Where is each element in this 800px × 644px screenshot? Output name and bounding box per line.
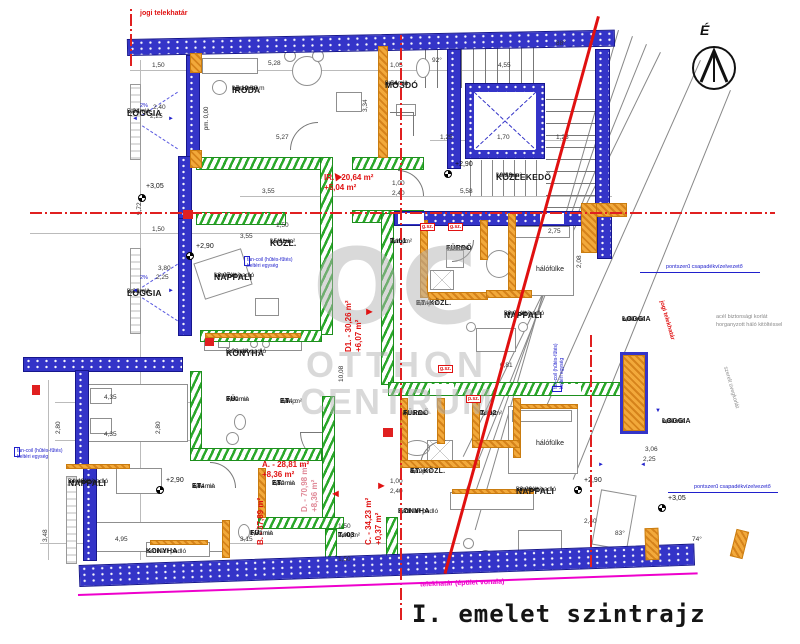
dim-label: 2,80 [155, 421, 162, 434]
level-marker-icon [138, 194, 146, 202]
dim-label: 3,15 [240, 536, 253, 543]
interior-wall [196, 157, 321, 170]
dim-label: 1,50 [152, 62, 165, 69]
dim-label: 3,34 [362, 99, 369, 112]
elevator-cross-icon [474, 92, 536, 150]
dim-label: 1,50 [276, 222, 289, 229]
exterior-wall [24, 358, 182, 371]
section-marker [383, 428, 393, 437]
partition-wall [222, 520, 230, 558]
dim-label: 1,50 [338, 556, 351, 563]
note-underline [640, 272, 760, 273]
dim-label: 3,06 [645, 446, 658, 453]
level-marker-icon [444, 170, 452, 178]
partition-wall [472, 398, 480, 444]
section-marker [32, 385, 40, 395]
dim-label: 3,48 [42, 529, 49, 542]
lintel [520, 404, 578, 409]
slope-arrow-icon: ◄ [132, 288, 138, 294]
shower [430, 270, 454, 290]
section-line [30, 212, 775, 214]
fancoil-note: fan-coil (hűtés-fűtés)beltéri egység [14, 447, 20, 457]
railing-note: horganyzott háló kitöltéssel [716, 322, 782, 328]
exterior-wall [76, 371, 88, 466]
partition-wall [420, 220, 428, 298]
dim-label: 2,40 [153, 104, 166, 111]
fancoil-note: fan-coil (hűtés-fűtés)beltéri egység [552, 386, 562, 392]
lintel [205, 333, 301, 338]
slope-arrow-icon: ► [168, 116, 174, 122]
glass-railing-note: szerelt üvegkorlát [722, 366, 740, 409]
dim-label: 3,55 [240, 233, 253, 240]
boundary-line-left [130, 8, 132, 66]
level-marker-icon [658, 504, 666, 512]
interior-wall [352, 157, 424, 170]
level-label: +3,05 [668, 495, 686, 502]
dim-label: 2,80 [55, 421, 62, 434]
sofa [591, 489, 636, 550]
flue-tag: g.sz. [420, 223, 435, 231]
chair [466, 322, 476, 332]
pier [730, 529, 749, 559]
level-marker-icon [574, 486, 582, 494]
entry-arrow-icon: ► [376, 480, 387, 492]
dim-label: 92° [432, 57, 442, 64]
dim-label: 5,28 [268, 60, 281, 67]
table [255, 298, 279, 316]
section-line [590, 332, 592, 567]
dim-label: 2,08 [576, 255, 583, 268]
pillow [512, 410, 572, 422]
entry-arrow-icon: ◄ [330, 488, 341, 500]
chair [463, 538, 474, 549]
partition-wall [508, 213, 516, 297]
dim-label: 2,25 [150, 113, 163, 120]
dim-label: 3,80 [158, 265, 171, 272]
loggia-pier [623, 355, 645, 431]
floor-plan: jogi telekhatár jogi telekhatár telekhat… [0, 0, 800, 644]
dim-label: 4,55 [498, 62, 511, 69]
section-line [400, 35, 402, 620]
loggia-railing [130, 84, 141, 160]
partition-wall [480, 220, 488, 260]
interior-wall [448, 50, 460, 168]
boundary-label-top: jogi telekhatár [140, 10, 187, 17]
exterior-wall [596, 50, 609, 212]
datum-label: pm. 0,00 [204, 107, 210, 130]
partition-wall [437, 398, 445, 444]
interior-wall [388, 382, 633, 396]
slope-arrow-icon: ► [598, 462, 604, 468]
boundary-label-bottom: telekhatár (épület vonala) [420, 579, 505, 589]
fancoil-note: fan-coil (hűtés-fűtés)beltéri egység [244, 256, 250, 266]
dim-label: 2,25 [156, 274, 169, 281]
dim-label: 2,75 [548, 228, 561, 235]
loggia-railing [66, 476, 77, 564]
door-gap [430, 384, 454, 395]
partition-wall [190, 53, 202, 73]
boundary-label-right: jogi telekhatár [658, 300, 675, 341]
corner-pier [581, 203, 597, 253]
slope-label: 2% [140, 103, 148, 109]
dim-label: 10,08 [338, 366, 345, 382]
interior-wall [258, 517, 344, 529]
flue-tag: p.sz. [466, 395, 481, 403]
toilet [234, 414, 246, 430]
dim-label: 4,35 [104, 394, 117, 401]
dim-label: 3,55 [262, 188, 275, 195]
dim-label: 1,00 [392, 180, 405, 187]
slope-arrow-icon: ▼ [655, 408, 661, 414]
chair [518, 322, 528, 332]
level-marker-icon [186, 252, 194, 260]
watermark-line1: OTTHON [292, 348, 502, 382]
pillow [514, 226, 570, 238]
exterior-wall [598, 210, 611, 258]
level-label: +2,90 [166, 477, 184, 484]
dim-label: 83° [615, 530, 625, 537]
slope-arrow-icon: ◄ [640, 462, 646, 468]
chair [312, 50, 324, 62]
dim-label: 1,25 [440, 134, 453, 141]
dim-label: 5,58 [460, 188, 473, 195]
chair [212, 80, 227, 95]
flue-tag: g.sz. [448, 223, 463, 231]
drain-note: pontszerű csapadékvízelvezető [694, 484, 771, 490]
pier [644, 528, 659, 560]
toilet [416, 58, 430, 78]
dim-label: 1,50 [152, 226, 165, 233]
slope-arrow-icon: ◄ [132, 116, 138, 122]
level-marker-icon [156, 486, 164, 494]
partition-wall [190, 150, 202, 168]
partition-wall [400, 460, 480, 468]
level-label: +2,90 [196, 243, 214, 250]
drain-note: pontszerű csapadékvízelvezető [666, 264, 743, 270]
flue-tag: g.sz. [438, 365, 453, 373]
desk [202, 58, 258, 74]
door-arc [290, 122, 318, 150]
dim-label: 1,50 [338, 523, 351, 530]
washbasin [226, 432, 239, 445]
level-label: +2,90 [455, 161, 473, 168]
entry-arrow-icon: ► [364, 306, 375, 318]
north-compass-icon [690, 44, 738, 92]
slope-label: 2% [140, 275, 148, 281]
door-arc [390, 112, 414, 136]
dim-label: 5,27 [276, 134, 289, 141]
level-label: +3,05 [146, 183, 164, 190]
exterior-wall [179, 219, 191, 335]
section-marker [205, 338, 214, 346]
dim-label: 2,40 [392, 190, 405, 197]
dim-label: 88° [556, 40, 566, 47]
dim-label: 4,35 [104, 431, 117, 438]
lintel [66, 464, 130, 469]
slope-arrow-icon: ► [168, 288, 174, 294]
dim-label: 1,70 [497, 134, 510, 141]
level-label: +2,90 [584, 477, 602, 484]
lintel [150, 540, 208, 545]
cabinet [336, 92, 362, 112]
note-underline [668, 492, 778, 493]
partition-wall [428, 292, 488, 300]
partition-wall [486, 290, 532, 298]
railing-note: acél biztonsági korlát [716, 314, 767, 320]
drawing-title: I. emelet szintrajz [412, 600, 706, 628]
interior-wall [322, 396, 335, 522]
partition-wall [378, 46, 388, 158]
dim-label: 74° [692, 536, 702, 543]
dim-label: 4,95 [115, 536, 128, 543]
north-label: É [700, 22, 709, 38]
